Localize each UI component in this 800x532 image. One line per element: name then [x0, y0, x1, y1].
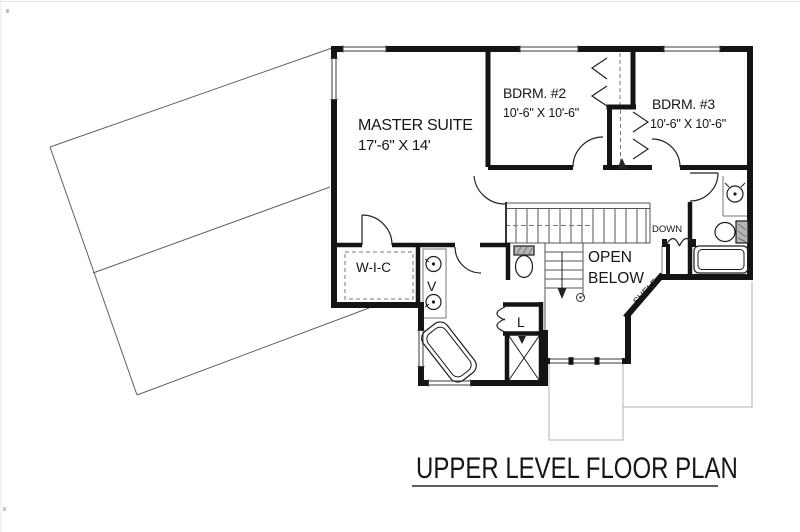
- stair-down-arrowhead: [558, 288, 567, 299]
- hall-bath-tub: [694, 246, 748, 273]
- master-toilet: [514, 246, 534, 278]
- pedestal-sink: [725, 183, 745, 202]
- room-label-open-below-1: OPEN: [588, 249, 632, 266]
- linen-double-doors: [497, 307, 505, 332]
- master-bath-door-arc: [455, 247, 481, 273]
- stair-well-edges: [545, 243, 583, 330]
- room-dims-master: 17'-6" X 14': [358, 137, 431, 154]
- room-label-bdrm3: BDRM. #3: [652, 96, 715, 112]
- master-suite-door-arc: [474, 176, 505, 204]
- window-open-below-bottom: [550, 357, 622, 365]
- bathroom-door: [690, 173, 718, 201]
- stair-treads-lower: [545, 252, 583, 288]
- room-label-linen: L: [517, 314, 525, 330]
- room-label-wic: W-I-C: [356, 260, 391, 275]
- room-dims-bdrm3: 10'-6" X 10'-6": [650, 117, 726, 131]
- hall-bath-toilet: [715, 221, 748, 243]
- room-label-open-below-2: BELOW: [588, 270, 644, 287]
- stair-volute-dot: [579, 296, 581, 298]
- window-bath-left: [417, 330, 425, 367]
- window-master-left: [330, 58, 338, 100]
- window-bath-bottom: [428, 379, 471, 387]
- label-down: DOWN: [652, 224, 682, 235]
- window-bdrm3-top: [664, 45, 720, 53]
- room-label-master: MASTER SUITE: [358, 117, 473, 134]
- plan-title-text: UPPER LEVEL FLOOR PLAN: [416, 450, 738, 484]
- closet-attic-arrow: [617, 158, 627, 169]
- room-label-vanity: V: [427, 278, 437, 294]
- bdrm3-closet-bifold-doors: [633, 112, 648, 159]
- window-master-top: [343, 45, 386, 53]
- master-tub: [418, 318, 480, 385]
- closet-walls: [607, 49, 637, 169]
- room-dims-bdrm2: 10'-6" X 10'-6": [503, 106, 579, 120]
- bdrm2-closet-bifold-doors: [592, 58, 607, 106]
- roof-outline: [50, 48, 369, 395]
- shower: [509, 336, 539, 380]
- floor-plan-drawing: MASTER SUITE 17'-6" X 14' BDRM. #2 10'-6…: [0, 0, 800, 532]
- bdrm2-door-arc: [573, 137, 603, 167]
- bdrm3-door-arc: [652, 139, 680, 167]
- wic-door: [362, 215, 392, 245]
- plan-title: UPPER LEVEL FLOOR PLAN: [416, 450, 738, 484]
- room-label-bdrm2: BDRM. #2: [503, 85, 566, 101]
- window-bdrm2-top: [520, 45, 578, 53]
